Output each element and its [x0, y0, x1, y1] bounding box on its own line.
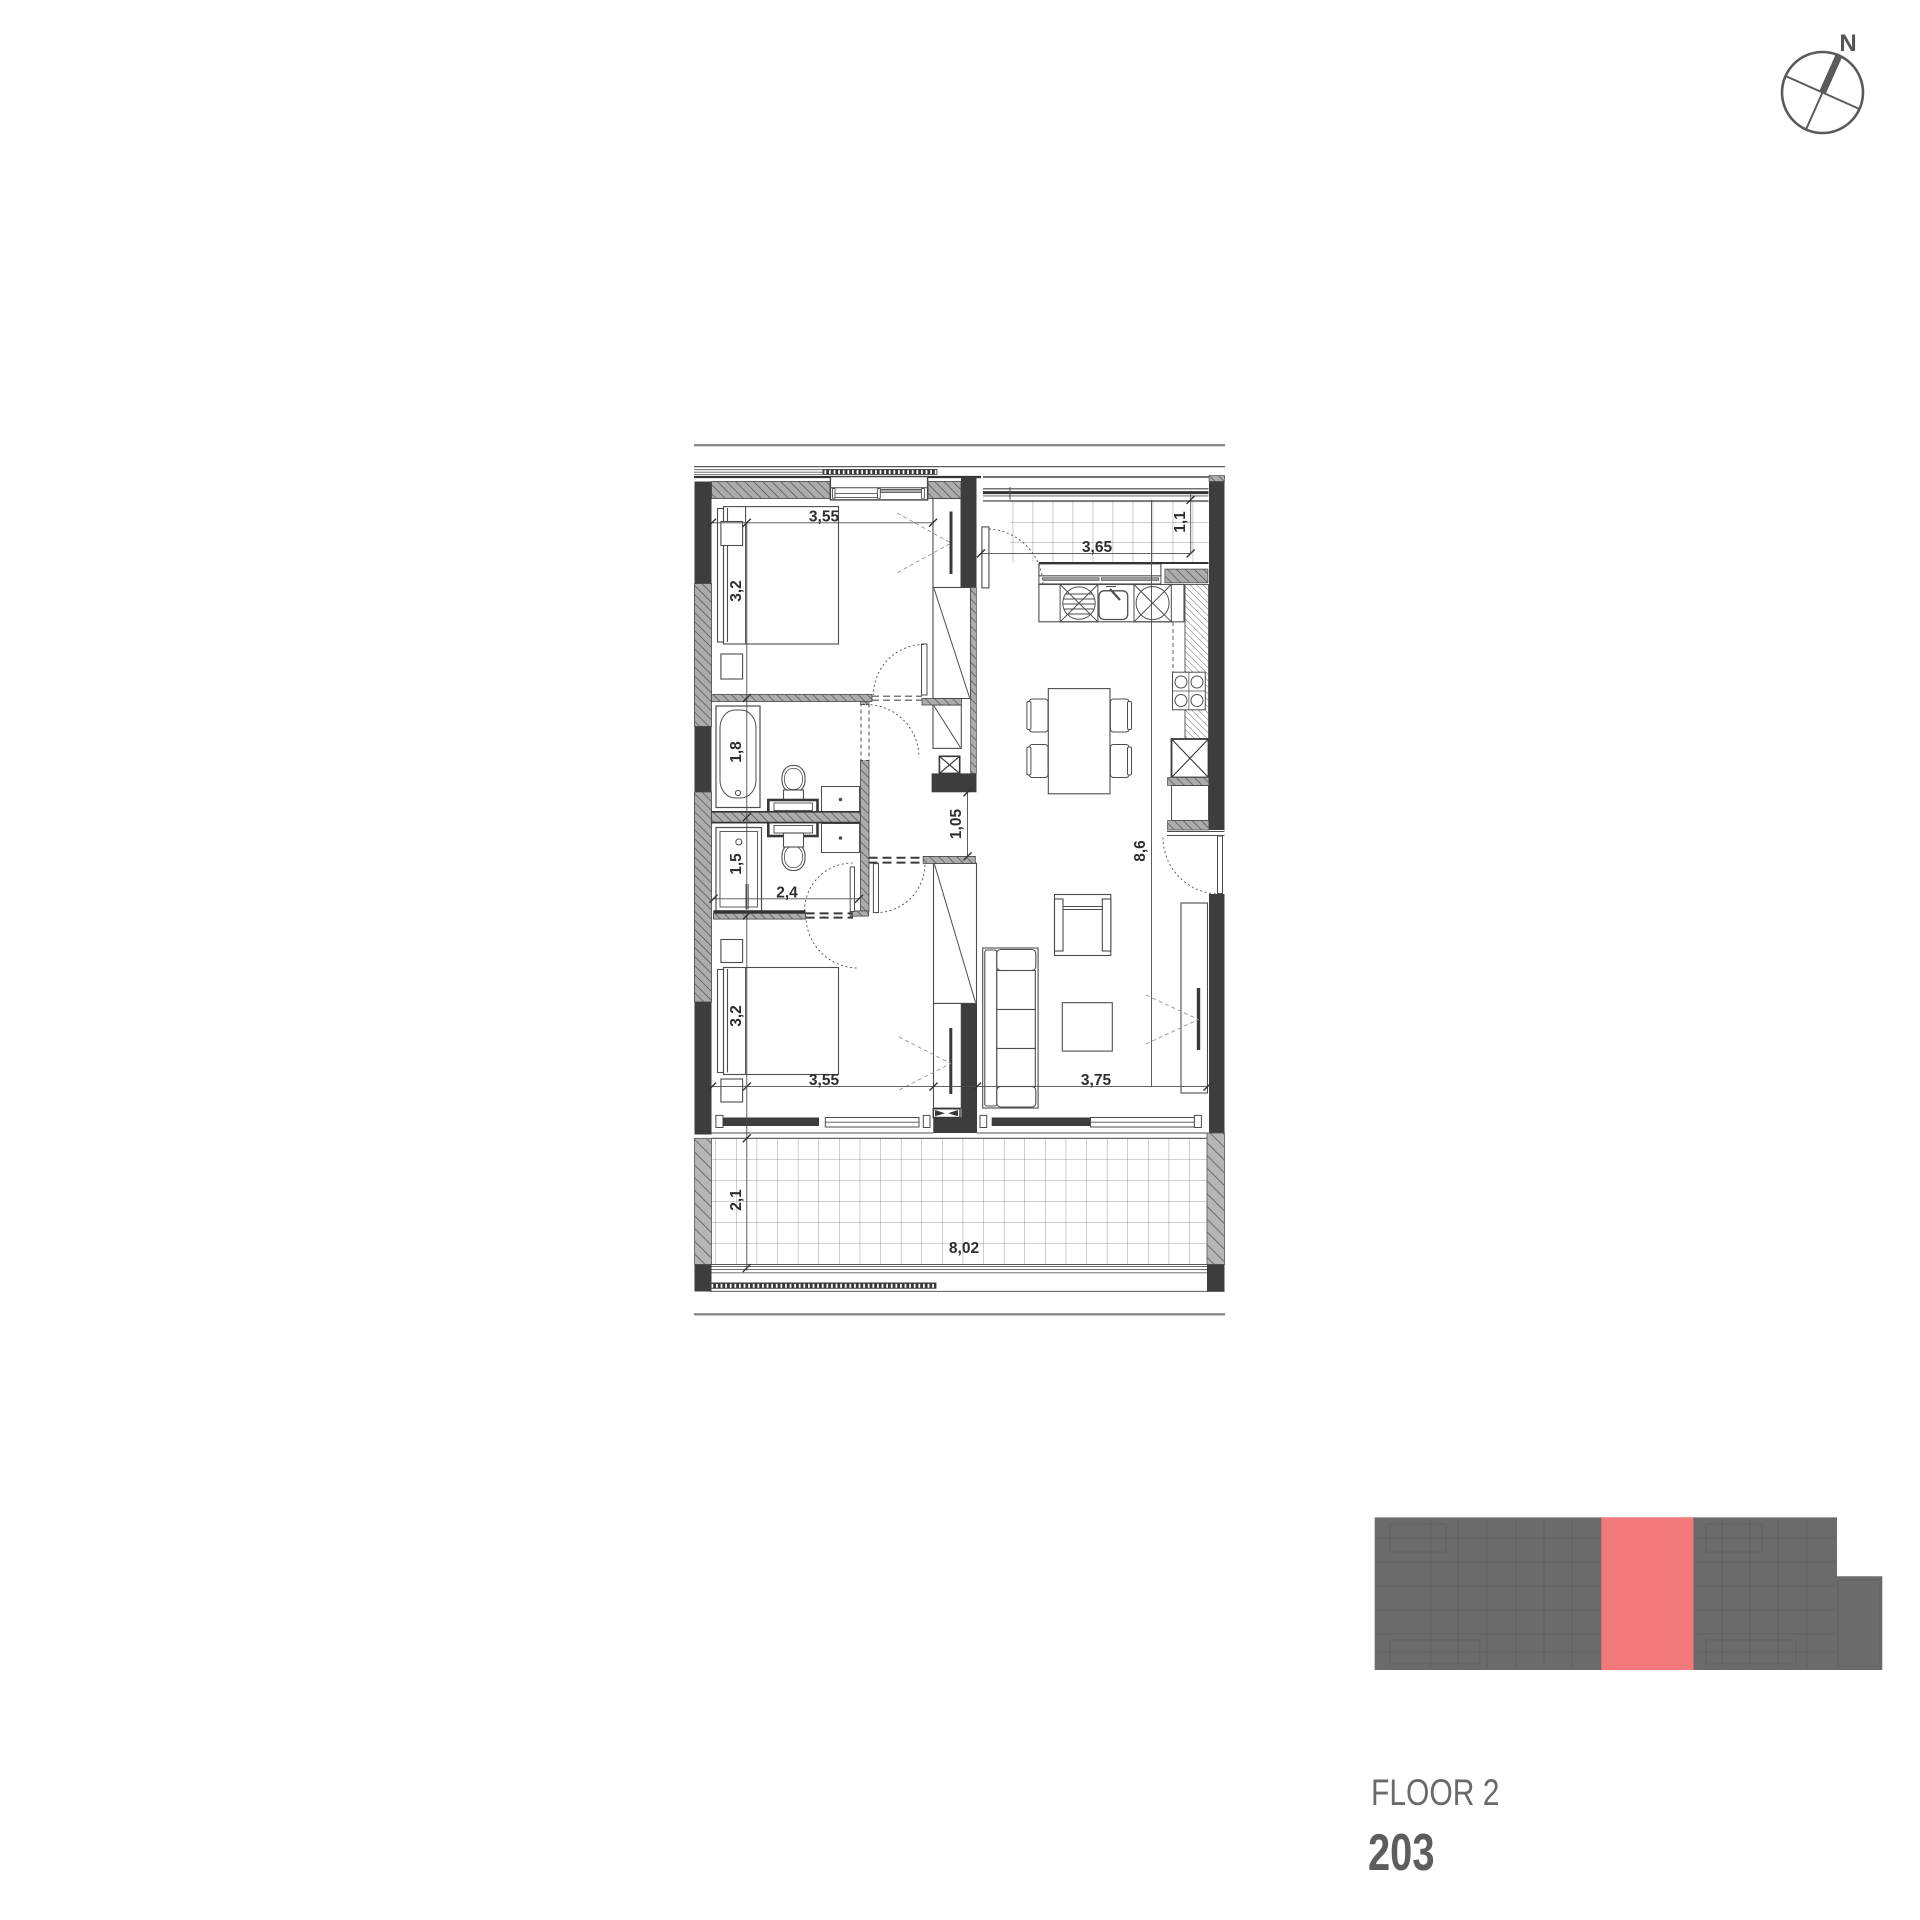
svg-text:3,2: 3,2 [728, 1005, 745, 1027]
svg-text:8,02: 8,02 [949, 1240, 979, 1257]
svg-text:2,4: 2,4 [776, 884, 798, 901]
svg-text:2,1: 2,1 [728, 1189, 745, 1211]
svg-text:1,1: 1,1 [1172, 511, 1189, 533]
svg-text:1,8: 1,8 [728, 741, 745, 763]
svg-text:1,5: 1,5 [728, 853, 745, 875]
svg-text:3,55: 3,55 [809, 508, 840, 525]
svg-text:3,75: 3,75 [1081, 1072, 1112, 1089]
svg-text:N: N [1839, 30, 1856, 57]
svg-text:1,05: 1,05 [948, 809, 965, 840]
svg-text:203: 203 [1368, 1824, 1435, 1882]
svg-text:3,55: 3,55 [809, 1072, 840, 1089]
svg-text:FLOOR 2: FLOOR 2 [1371, 1771, 1500, 1813]
svg-text:3,65: 3,65 [1082, 539, 1113, 556]
svg-text:3,2: 3,2 [728, 580, 745, 602]
svg-text:8,6: 8,6 [1132, 840, 1149, 862]
